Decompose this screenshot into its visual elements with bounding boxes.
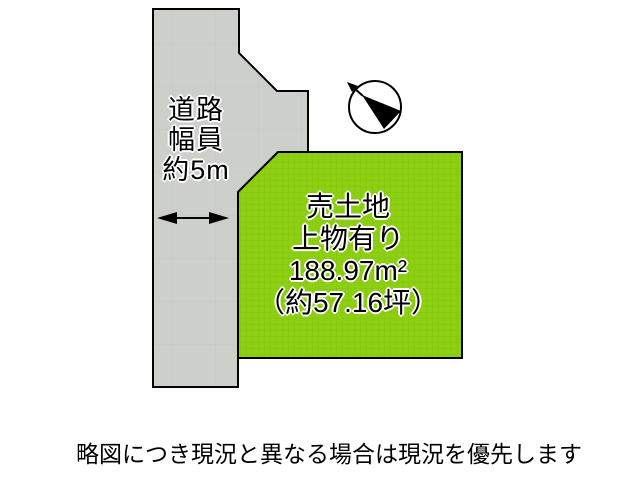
road-width-label: 道路 幅員 約5m [153,95,239,185]
road-width-label-line2: 幅員 [153,125,239,155]
parcel-subtitle: 上物有り [234,223,462,255]
site-plan-diagram: 道路 幅員 約5m 売土地 上物有り 188.97m² （約57.16坪） 略図… [0,0,640,480]
parcel-title: 売土地 [234,191,462,223]
disclaimer-note: 略図につき現況と異なる場合は現況を優先します [0,441,640,467]
parcel-area-tsubo: （約57.16坪） [234,287,462,319]
road-width-label-line1: 道路 [153,95,239,125]
parcel-area-sqm: 188.97m² [234,255,462,287]
compass-north-icon [347,81,401,133]
road-width-label-line3: 約5m [153,155,239,185]
parcel-label: 売土地 上物有り 188.97m² （約57.16坪） [234,191,462,319]
